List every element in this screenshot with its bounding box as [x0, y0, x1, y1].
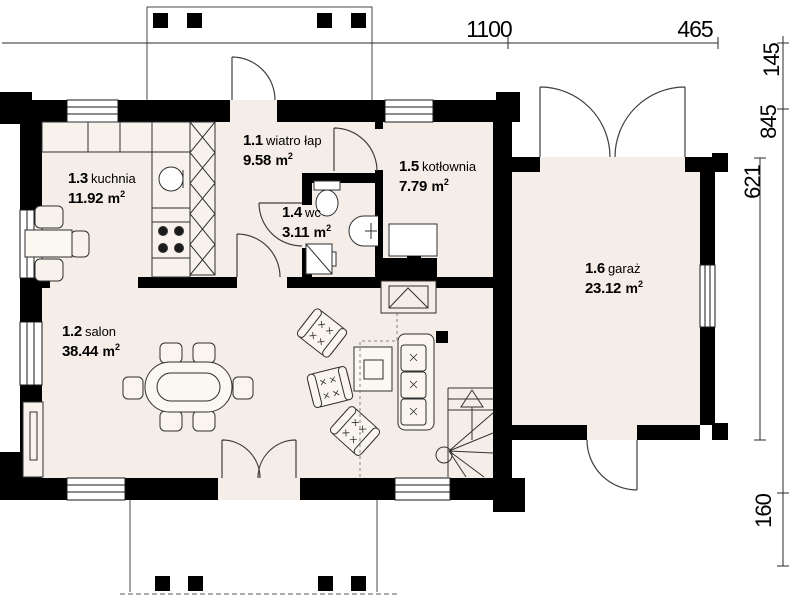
chair: [71, 231, 89, 257]
room-name: garaż: [608, 261, 641, 276]
room-name: wc: [305, 205, 321, 220]
wall-segment: [685, 157, 700, 172]
room-label-salon: 1.2salon 38.44 m2: [62, 322, 120, 361]
sofa: [398, 334, 434, 430]
wall-segment: [20, 122, 42, 210]
wall-segment: [125, 478, 218, 500]
room-area: 7.79: [399, 178, 427, 195]
room-number: 1.6: [585, 260, 605, 277]
unit-exponent: 2: [326, 223, 331, 233]
wall-segment: [8, 100, 67, 122]
garage-back-door: [587, 440, 637, 490]
chair: [35, 206, 63, 228]
porch-post: [317, 13, 332, 28]
unit-exponent: 2: [115, 342, 120, 352]
unit-exponent: 2: [120, 189, 125, 199]
room-area: 38.44: [62, 343, 98, 360]
fireplace: [381, 281, 436, 313]
room-name: wiatro łap: [266, 133, 322, 148]
dim-line-top: [2, 37, 718, 49]
wall-segment: [637, 425, 700, 440]
wall-segment: [300, 478, 395, 500]
garage-gate-opening-floor: [540, 157, 685, 172]
terrace-post: [351, 576, 366, 591]
room-number: 1.2: [62, 323, 82, 340]
room-label-garage: 1.6garaż 23.12 m2: [585, 259, 643, 298]
wall-segment: [512, 157, 540, 172]
dimension-right-845: 845: [757, 90, 781, 154]
unit: m: [108, 190, 120, 206]
wall-segment: [138, 277, 237, 288]
boiler-flue: [407, 256, 421, 263]
garage-back-door-opening-floor: [587, 425, 637, 440]
terrace-post: [318, 576, 333, 591]
room-label-vestibule: 1.1wiatro łap 9.58 m2: [243, 131, 322, 170]
chair: [233, 377, 253, 399]
terrace-posts: [155, 576, 366, 591]
porch-posts: [153, 13, 366, 28]
unit: m: [314, 224, 326, 240]
room-area: 11.92: [68, 190, 103, 207]
chair: [193, 411, 215, 431]
entrance-opening-floor: [230, 100, 277, 122]
chair: [193, 343, 215, 363]
wall-segment: [8, 478, 67, 500]
unit: m: [275, 152, 287, 168]
terrace-post: [155, 576, 170, 591]
terrace-post: [188, 576, 203, 591]
porch-outline: [147, 7, 372, 100]
porch-post: [153, 13, 168, 28]
window-bottom-salon-right: [395, 478, 450, 500]
wall-segment: [118, 100, 230, 122]
kitchen-table: [25, 230, 72, 257]
shower-tray: [306, 244, 336, 274]
window-bottom-salon-left: [67, 478, 125, 500]
wall-segment: [700, 157, 715, 265]
room-name: salon: [85, 324, 116, 339]
room-area: 9.58: [243, 152, 271, 169]
room-number: 1.3: [68, 170, 88, 187]
window-garage-east: [700, 265, 715, 327]
dimension-right-621: 621: [741, 150, 765, 214]
room-area: 23.12: [585, 280, 621, 297]
entrance-door: [232, 57, 275, 100]
floor-plan: 1100 465 145 845 621 160 1.1wiatro łap 9…: [0, 0, 792, 600]
dimension-right-145: 145: [760, 28, 784, 92]
kitchen-counter: [152, 122, 190, 277]
unit: m: [626, 280, 638, 296]
chair: [160, 343, 182, 363]
corner-pillar: [712, 423, 728, 440]
structural-post: [436, 331, 448, 343]
room-label-boiler: 1.5kotłownia 7.79 m2: [399, 157, 476, 196]
chair: [35, 259, 63, 281]
dining-table: [145, 362, 232, 412]
unit: m: [431, 178, 443, 194]
room-name: kotłownia: [422, 159, 476, 174]
window-top-boiler: [385, 100, 433, 122]
chair: [160, 411, 182, 431]
garage-floor: [512, 172, 700, 425]
vestibule-wardrobe: [190, 122, 215, 275]
dimension-top-house: 1100: [445, 16, 533, 43]
room-number: 1.5: [399, 158, 419, 175]
floor-plan-svg: [0, 0, 792, 600]
unit: m: [103, 343, 115, 359]
room-label-kitchen: 1.3kuchnia 11.92 m2: [68, 169, 136, 208]
wall-segment: [700, 327, 715, 425]
sideboard: [23, 402, 43, 477]
chair: [123, 377, 143, 399]
window-top-kitchen: [67, 100, 118, 122]
kitchen-upper-cabinets: [42, 122, 152, 152]
terrace-door-opening-floor: [218, 478, 300, 500]
room-label-wc: 1.4wc 3.11 m2: [282, 203, 331, 242]
wall-segment: [302, 183, 312, 205]
wall-segment: [277, 100, 385, 122]
wall-segment: [20, 278, 42, 322]
unit-exponent: 2: [444, 177, 449, 187]
room-number: 1.4: [282, 204, 302, 221]
kitchen-sink: [159, 167, 183, 191]
unit-exponent: 2: [638, 279, 643, 289]
dimension-right-160: 160: [752, 479, 776, 543]
unit-exponent: 2: [288, 151, 293, 161]
wall-segment: [497, 425, 587, 440]
room-area: 3.11: [282, 224, 309, 241]
room-number: 1.1: [243, 132, 263, 149]
wall-segment: [375, 122, 383, 129]
window-left-salon: [20, 322, 42, 385]
front-porch: [147, 7, 372, 100]
toilet-tank: [314, 181, 340, 190]
porch-post: [351, 13, 366, 28]
dimension-top-garage: 465: [664, 16, 726, 43]
corner-pillar: [712, 153, 728, 172]
garage-gate: [540, 87, 685, 157]
room-name: kuchnia: [91, 171, 136, 186]
porch-post: [187, 13, 202, 28]
boiler: [389, 224, 437, 256]
